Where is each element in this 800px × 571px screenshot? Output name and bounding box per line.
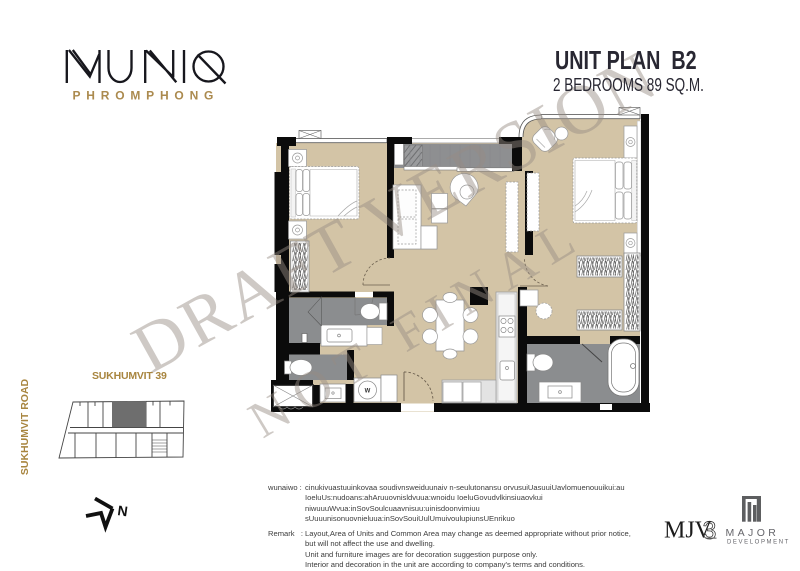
svg-text:N: N: [117, 502, 129, 519]
svg-text:DEVELOPMENT: DEVELOPMENT: [727, 540, 790, 546]
svg-text:3: 3: [703, 517, 717, 545]
svg-text:MAJOR: MAJOR: [726, 527, 780, 539]
svg-text:PHROMPHONG: PHROMPHONG: [73, 89, 220, 103]
